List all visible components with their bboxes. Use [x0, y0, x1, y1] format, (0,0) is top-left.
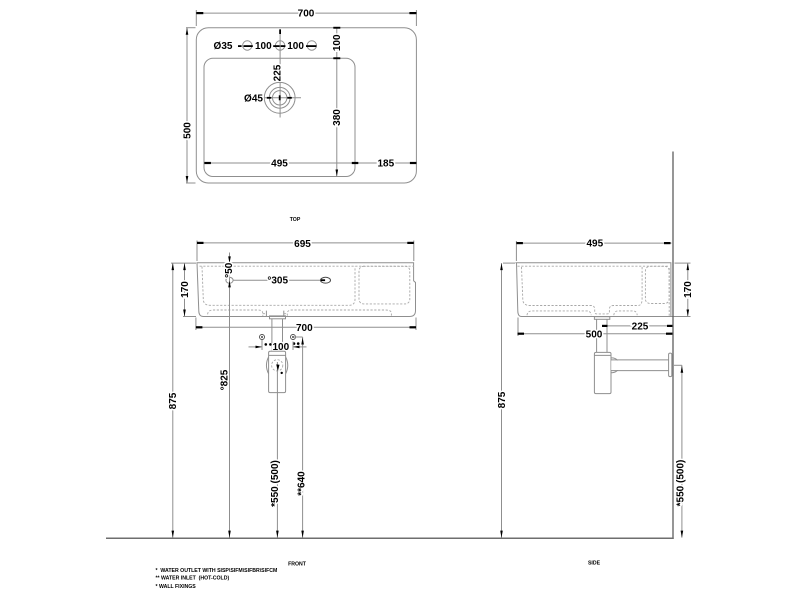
- svg-text:Ø45: Ø45: [244, 93, 263, 104]
- svg-text:*550 (500): *550 (500): [676, 460, 687, 507]
- svg-text:700: 700: [296, 323, 313, 334]
- svg-text:100: 100: [287, 41, 304, 52]
- svg-text:495: 495: [586, 239, 603, 250]
- svg-text:SIDE: SIDE: [588, 561, 601, 567]
- svg-text:**640: **640: [296, 471, 307, 496]
- svg-text:495: 495: [271, 159, 288, 170]
- svg-text:225: 225: [632, 322, 649, 333]
- svg-text:170: 170: [180, 281, 191, 298]
- svg-text:380: 380: [332, 109, 343, 126]
- svg-text:875: 875: [168, 392, 179, 409]
- svg-text:* WATER OUTLET WITH SISP\SIFM: * WATER OUTLET WITH SISP\SIFM\SIFBR\SIFC…: [156, 568, 278, 574]
- svg-text:Ø35: Ø35: [214, 41, 233, 52]
- svg-text:695: 695: [294, 239, 311, 250]
- svg-text:225: 225: [272, 64, 283, 81]
- svg-text:500: 500: [182, 122, 193, 139]
- svg-text:TOP: TOP: [290, 217, 301, 223]
- svg-text:185: 185: [377, 159, 394, 170]
- svg-text:°305: °305: [267, 275, 288, 286]
- svg-text:500: 500: [586, 330, 603, 341]
- svg-text:875: 875: [497, 391, 508, 408]
- svg-text:°825: °825: [219, 369, 230, 390]
- svg-text:°50: °50: [224, 262, 235, 278]
- svg-text:*550 (500): *550 (500): [270, 460, 281, 507]
- svg-text:100: 100: [255, 41, 272, 52]
- svg-text:100: 100: [332, 34, 343, 51]
- svg-text:FRONT: FRONT: [288, 562, 307, 568]
- svg-text:700: 700: [298, 9, 315, 20]
- svg-text:170: 170: [683, 281, 694, 298]
- svg-text:** WATER INLET (HOT-COLD): ** WATER INLET (HOT-COLD): [156, 576, 230, 582]
- svg-text:* WALL FIXINGS: * WALL FIXINGS: [156, 584, 197, 590]
